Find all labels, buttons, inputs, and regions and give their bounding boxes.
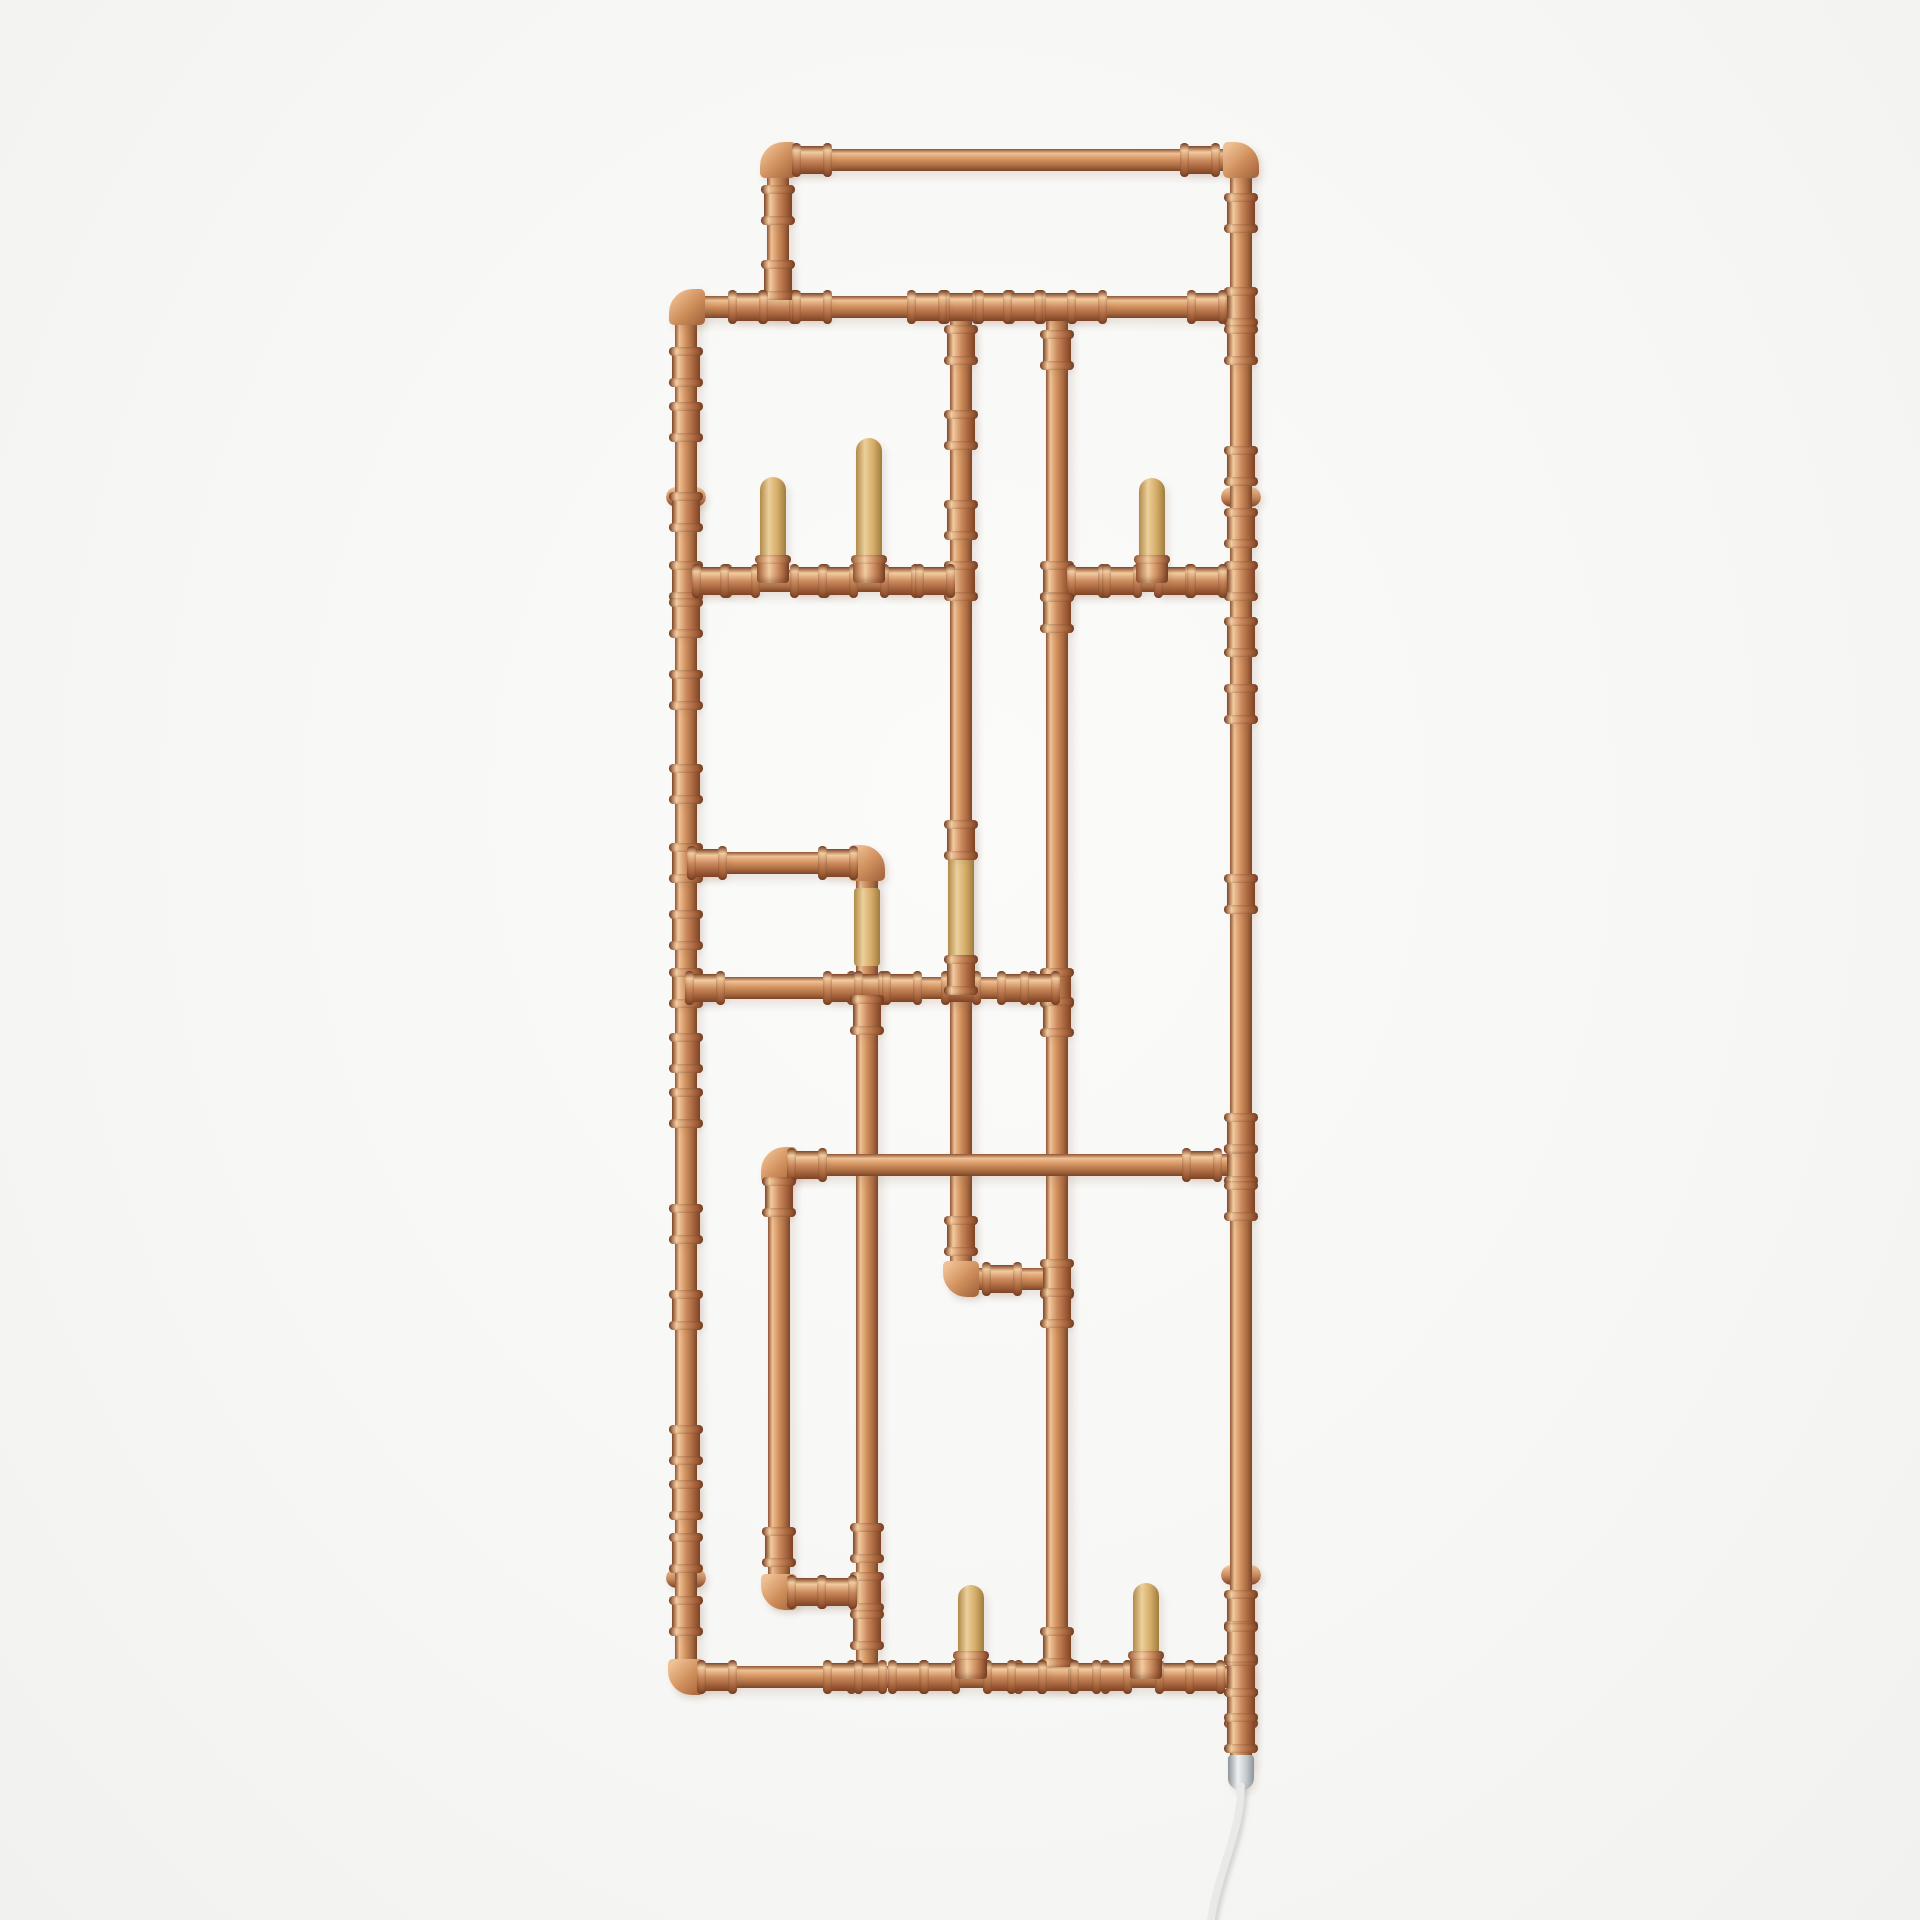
- peg-socket-fitting: [955, 1651, 987, 1679]
- pipe-coupling: [722, 567, 758, 595]
- pipe-coupling: [1022, 974, 1058, 1002]
- wooden-peg: [856, 438, 882, 572]
- pipe-coupling: [1184, 1151, 1220, 1179]
- pipe-coupling: [730, 293, 766, 321]
- pipe-coupling: [1227, 448, 1255, 484]
- pipe-coupling: [1104, 567, 1140, 595]
- pipe-coupling: [672, 672, 700, 708]
- pipe-coupling: [672, 1292, 700, 1328]
- pipe-horizontal-lower-bar: [768, 1154, 1252, 1176]
- pipe-coupling: [1043, 332, 1071, 368]
- pipe-coupling: [672, 912, 700, 948]
- peg-socket-fitting: [757, 555, 789, 583]
- pipe-coupling: [1043, 1629, 1071, 1665]
- pipe-coupling: [672, 1035, 700, 1071]
- pipe-elbow: [943, 1261, 979, 1297]
- pipe-coupling: [1094, 1663, 1130, 1691]
- pipe-coupling: [947, 327, 975, 363]
- pipe-coupling: [1069, 567, 1105, 595]
- power-cable-wire: [1211, 1786, 1241, 1920]
- pipe-coupling: [1043, 1290, 1071, 1326]
- pipe-coupling: [794, 146, 830, 174]
- pipe-coupling: [853, 1525, 881, 1561]
- pipe-tee-fitting: [1227, 289, 1255, 325]
- pipe-coupling: [1227, 1715, 1255, 1751]
- pipe-coupling: [765, 1179, 793, 1215]
- pipe-coupling: [947, 502, 975, 538]
- pipe-coupling: [764, 262, 792, 298]
- pipe-coupling: [909, 293, 945, 321]
- pipe-elbow: [760, 142, 796, 178]
- pipe-coupling: [1189, 567, 1225, 595]
- pipe-coupling: [672, 1535, 700, 1571]
- pipe-coupling: [687, 974, 723, 1002]
- pipe-coupling: [672, 1598, 700, 1634]
- pipe-coupling: [1227, 327, 1255, 363]
- pipe-coupling: [917, 567, 953, 595]
- pipe-coupling: [819, 1578, 855, 1606]
- pipe-coupling: [1227, 195, 1255, 231]
- pipe-coupling: [672, 349, 700, 385]
- pipe-coupling: [1227, 686, 1255, 722]
- pipe-coupling: [947, 822, 975, 858]
- pipe-tee-fitting: [1227, 563, 1255, 599]
- pipe-coupling: [765, 1529, 793, 1565]
- wood-sleeve: [854, 888, 880, 966]
- pipe-coupling: [689, 849, 725, 877]
- pipe-coupling: [1069, 293, 1105, 321]
- pipe-coupling: [853, 997, 881, 1033]
- pipe-coupling: [1227, 876, 1255, 912]
- pipe-coupling: [947, 412, 975, 448]
- pipe-coupling: [1227, 1625, 1255, 1661]
- pipe-coupling: [1009, 1663, 1045, 1691]
- pipe-coupling: [794, 293, 830, 321]
- pipe-coupling: [672, 494, 700, 530]
- pipe-coupling: [699, 1663, 735, 1691]
- pipe-coupling: [1227, 1115, 1255, 1151]
- pipe-structure: [0, 0, 1920, 1920]
- pipe-vertical-right-rail: [1230, 149, 1252, 1766]
- pipe-coupling: [1227, 619, 1255, 655]
- peg-socket-fitting: [1136, 555, 1168, 583]
- pipe-coupling: [672, 766, 700, 802]
- pipe-coupling: [853, 1612, 881, 1648]
- pipe-coupling: [1189, 293, 1225, 321]
- pipe-coupling: [1187, 1663, 1223, 1691]
- pipe-tee-fitting: [943, 293, 979, 321]
- pipe-coupling: [922, 1663, 958, 1691]
- pipe-coupling: [820, 567, 856, 595]
- peg-socket-fitting: [1130, 1651, 1162, 1679]
- pipe-elbow: [1223, 142, 1259, 178]
- pipe-coupling: [820, 849, 856, 877]
- pipe-coupling: [1005, 293, 1041, 321]
- pipe-coupling: [672, 1482, 700, 1518]
- pipe-coupling: [882, 567, 918, 595]
- pipe-coupling: [789, 1151, 825, 1179]
- pipe-coupling: [1182, 146, 1218, 174]
- pipe-coupling: [984, 1265, 1020, 1293]
- power-cable: [1140, 1782, 1310, 1920]
- pipe-coupling: [672, 1206, 700, 1242]
- pipe-coupling: [947, 957, 975, 993]
- pipe-coupling: [1043, 595, 1071, 631]
- product-photo: [0, 0, 1920, 1920]
- pipe-coupling: [672, 600, 700, 636]
- pipe-coupling: [825, 1663, 861, 1691]
- pipe-elbow: [669, 289, 705, 325]
- pipe-coupling: [884, 974, 920, 1002]
- pipe-coupling: [672, 1427, 700, 1463]
- pipe-tee-fitting: [853, 1574, 881, 1610]
- pipe-coupling: [1227, 510, 1255, 546]
- pipe-coupling: [672, 1090, 700, 1126]
- pipe-coupling: [672, 404, 700, 440]
- pipe-coupling: [764, 187, 792, 223]
- pipe-coupling: [1227, 1183, 1255, 1219]
- peg-socket-fitting: [853, 555, 885, 583]
- pipe-coupling: [947, 1218, 975, 1254]
